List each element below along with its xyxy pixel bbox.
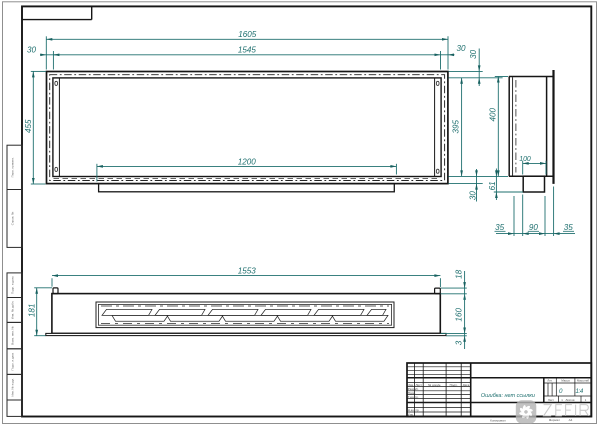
- svg-text:№ докум.: № докум.: [428, 383, 441, 387]
- svg-text:1605: 1605: [238, 30, 257, 39]
- svg-text:А4: А4: [569, 418, 573, 422]
- svg-text:0: 0: [559, 388, 563, 395]
- svg-text:1545: 1545: [238, 45, 257, 54]
- svg-text:Лит.: Лит.: [547, 378, 552, 382]
- svg-text:30: 30: [469, 49, 478, 59]
- svg-text:Листов: Листов: [565, 398, 575, 402]
- svg-text:18: 18: [454, 269, 463, 279]
- svg-text:395: 395: [452, 119, 461, 133]
- svg-text:Инв. № дубл.: Инв. № дубл.: [11, 300, 15, 319]
- svg-text:Подп.: Подп.: [450, 383, 458, 387]
- svg-text:400: 400: [488, 107, 497, 121]
- svg-text:Взам. инв. №: Взам. инв. №: [11, 326, 15, 345]
- svg-text:Масштаб: Масштаб: [577, 378, 589, 382]
- svg-text:Подп. и дата: Подп. и дата: [11, 352, 15, 370]
- svg-text:Копировал: Копировал: [490, 418, 506, 422]
- svg-text:30: 30: [469, 191, 478, 201]
- svg-text:1:4: 1:4: [575, 389, 583, 395]
- svg-text:35: 35: [495, 223, 505, 232]
- svg-text:Подп. и дата: Подп. и дата: [11, 276, 15, 294]
- svg-text:Перв. примен.: Перв. примен.: [11, 157, 15, 177]
- svg-text:30: 30: [456, 44, 466, 53]
- svg-text:35: 35: [564, 223, 574, 232]
- svg-text:Справ. №: Справ. №: [11, 211, 15, 225]
- svg-text:30: 30: [27, 45, 37, 54]
- svg-text:1553: 1553: [238, 267, 257, 276]
- svg-text:3: 3: [454, 340, 463, 345]
- svg-text:Дата: Дата: [463, 383, 470, 387]
- svg-text:90: 90: [529, 223, 539, 232]
- svg-text:Масса: Масса: [561, 378, 570, 382]
- svg-text:Лист: Лист: [548, 398, 555, 402]
- svg-text:Н.контр.: Н.контр.: [408, 408, 420, 412]
- svg-text:61: 61: [488, 181, 497, 190]
- svg-text:181: 181: [27, 304, 36, 318]
- svg-text:Формат: Формат: [549, 418, 561, 422]
- svg-text:Т.контр.: Т.контр.: [408, 395, 419, 399]
- svg-text:455: 455: [24, 119, 33, 133]
- svg-text:160: 160: [455, 308, 464, 322]
- svg-text:Инв. № подл.: Инв. № подл.: [11, 378, 15, 397]
- svg-text:Ошибка: нет ссылки: Ошибка: нет ссылки: [481, 393, 535, 399]
- svg-text:1200: 1200: [238, 157, 257, 166]
- svg-text:Утв.: Утв.: [408, 413, 414, 417]
- svg-text:100: 100: [519, 156, 531, 163]
